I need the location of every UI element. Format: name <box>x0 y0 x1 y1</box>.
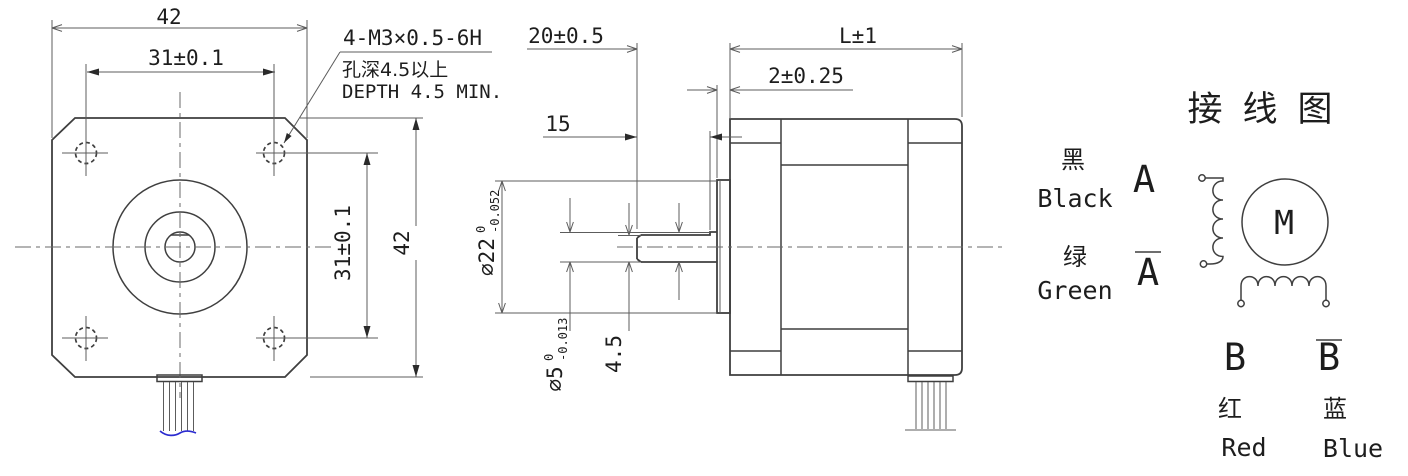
svg-text:L±1: L±1 <box>839 24 877 48</box>
svg-text:Blue: Blue <box>1323 434 1383 463</box>
svg-text:B: B <box>1224 336 1246 379</box>
svg-text:0: 0 <box>474 226 488 233</box>
winding-a <box>1199 175 1223 267</box>
svg-text:20±0.5: 20±0.5 <box>528 24 604 48</box>
wire-break-line-blue <box>160 431 196 435</box>
svg-text:Green: Green <box>1037 276 1112 305</box>
svg-text:绿: 绿 <box>1063 243 1087 271</box>
wiring-diagram: 接线图 黑 Black A 绿 Green A M B B 红 蓝 Red <box>1037 90 1383 463</box>
svg-text:孔深4.5以上: 孔深4.5以上 <box>342 59 448 81</box>
dim-hole-spacing-right: 31±0.1 <box>331 153 371 338</box>
svg-text:A: A <box>1137 251 1159 294</box>
svg-text:红: 红 <box>1218 395 1242 423</box>
svg-text:A: A <box>1133 158 1155 201</box>
svg-text:31±0.1: 31±0.1 <box>148 46 224 70</box>
tapped-hole-note: 4-M3×0.5-6H 孔深4.5以上 DEPTH 4.5 MIN. <box>284 26 502 143</box>
svg-text:黑: 黑 <box>1061 146 1085 174</box>
svg-text:0: 0 <box>542 354 556 361</box>
svg-text:∅5: ∅5 <box>543 366 567 391</box>
side-view: 20±0.5 L±1 2±0.25 15 <box>474 24 1002 430</box>
svg-text:B: B <box>1318 336 1340 379</box>
motor-label: M <box>1274 203 1294 242</box>
svg-text:DEPTH 4.5 MIN.: DEPTH 4.5 MIN. <box>342 81 502 103</box>
svg-text:31±0.1: 31±0.1 <box>331 205 355 281</box>
svg-text:∅22: ∅22 <box>475 238 499 276</box>
svg-text:-0.052: -0.052 <box>488 190 502 233</box>
svg-text:Red: Red <box>1221 433 1266 462</box>
dim-flat-length: 15 <box>543 112 742 230</box>
svg-text:2±0.25: 2±0.25 <box>768 64 844 88</box>
svg-text:4-M3×0.5-6H: 4-M3×0.5-6H <box>343 26 482 50</box>
svg-text:42: 42 <box>390 230 414 255</box>
winding-b <box>1238 277 1329 307</box>
front-view: 42 31±0.1 4-M3×0.5-6H 孔深4.5以上 DEPTH 4.5 … <box>15 5 502 435</box>
svg-text:42: 42 <box>156 5 181 29</box>
svg-text:-0.013: -0.013 <box>556 318 570 361</box>
svg-text:蓝: 蓝 <box>1323 395 1347 423</box>
svg-text:4.5: 4.5 <box>602 335 626 373</box>
svg-text:Black: Black <box>1037 184 1112 213</box>
dim-hole-spacing-top: 31±0.1 <box>87 46 275 76</box>
lead-wires-side <box>905 376 956 430</box>
stepper-motor-drawing: 42 31±0.1 4-M3×0.5-6H 孔深4.5以上 DEPTH 4.5 … <box>0 0 1408 476</box>
dim-pilot-depth: 2±0.25 <box>687 64 853 178</box>
svg-text:15: 15 <box>545 112 570 136</box>
wiring-title: 接线图 <box>1187 90 1352 130</box>
dim-shaft-length: 20±0.5 <box>527 24 637 229</box>
dim-body-length: L±1 <box>730 24 962 119</box>
dim-flat-height: 4.5 <box>602 203 682 373</box>
